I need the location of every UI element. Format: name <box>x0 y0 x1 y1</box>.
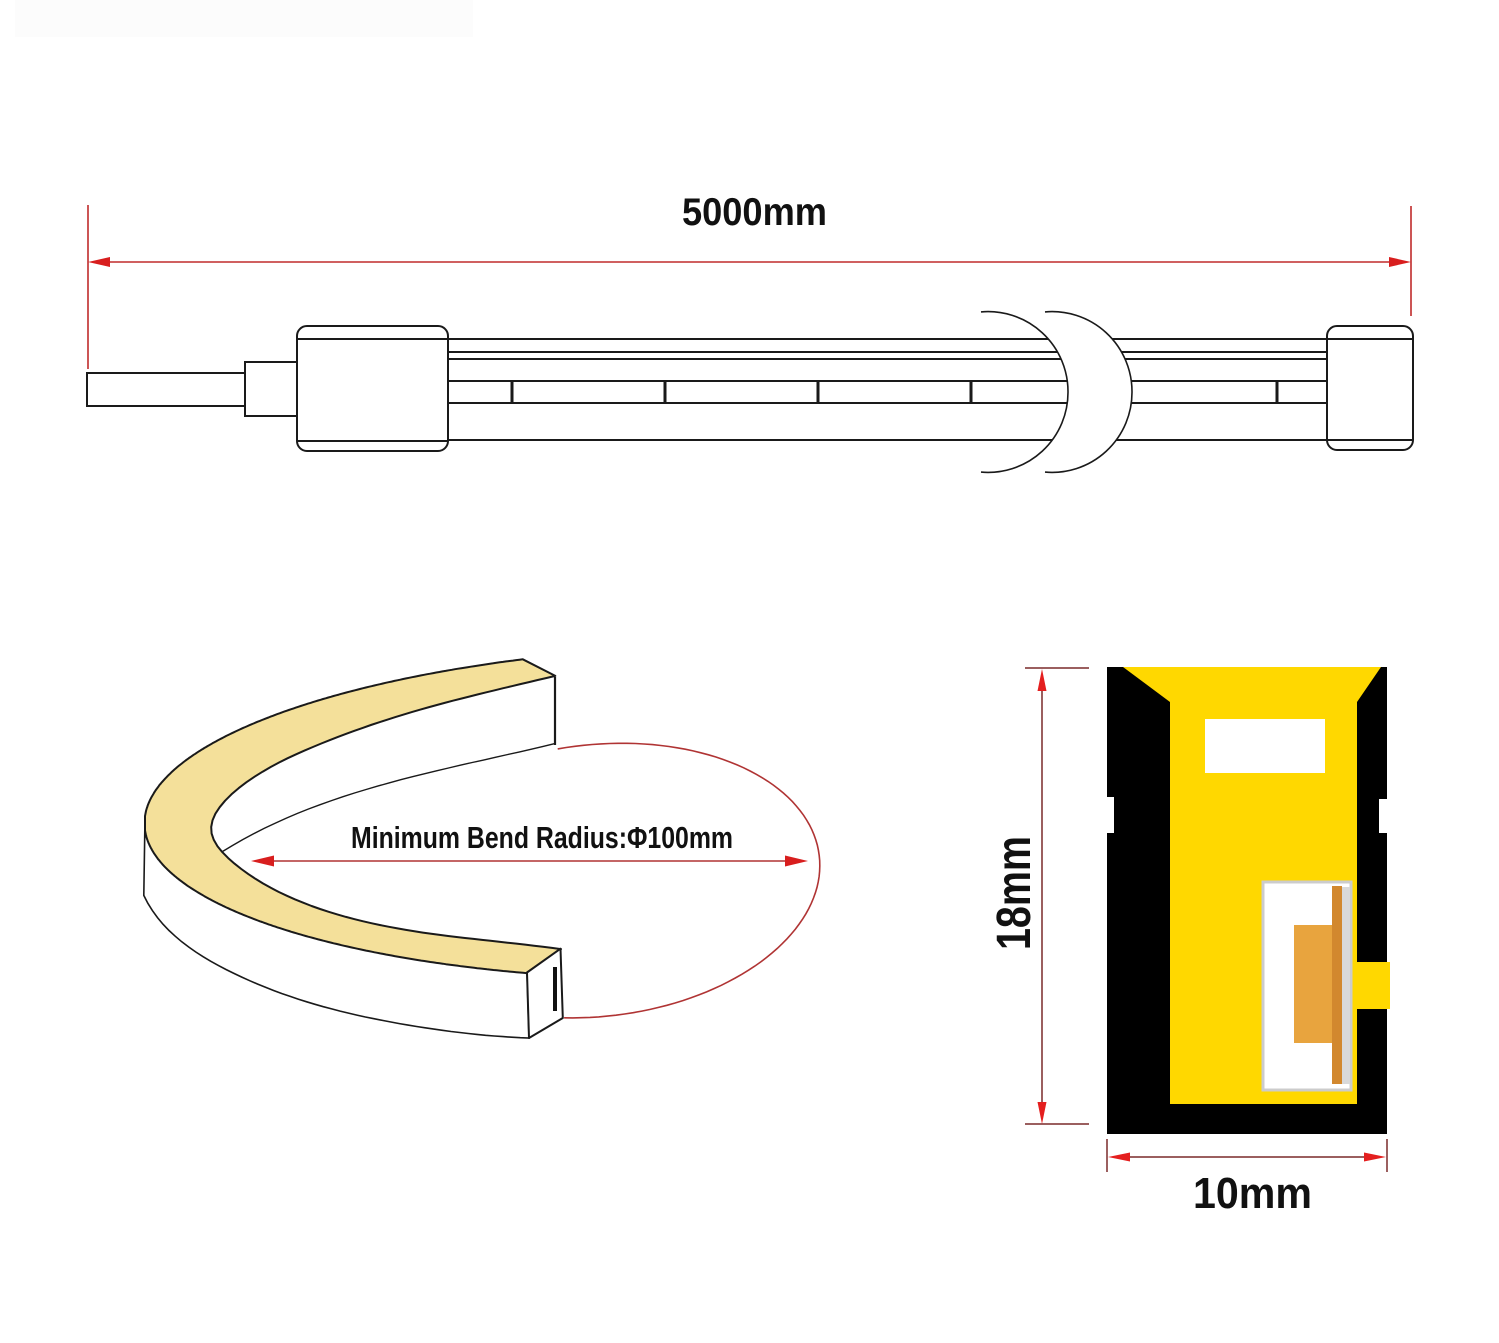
svg-text:10mm: 10mm <box>1193 1169 1312 1218</box>
svg-text:Minimum Bend Radius:Φ100mm: Minimum Bend Radius:Φ100mm <box>351 820 733 855</box>
svg-text:18mm: 18mm <box>988 836 1041 950</box>
svg-text:5000mm: 5000mm <box>682 191 827 234</box>
